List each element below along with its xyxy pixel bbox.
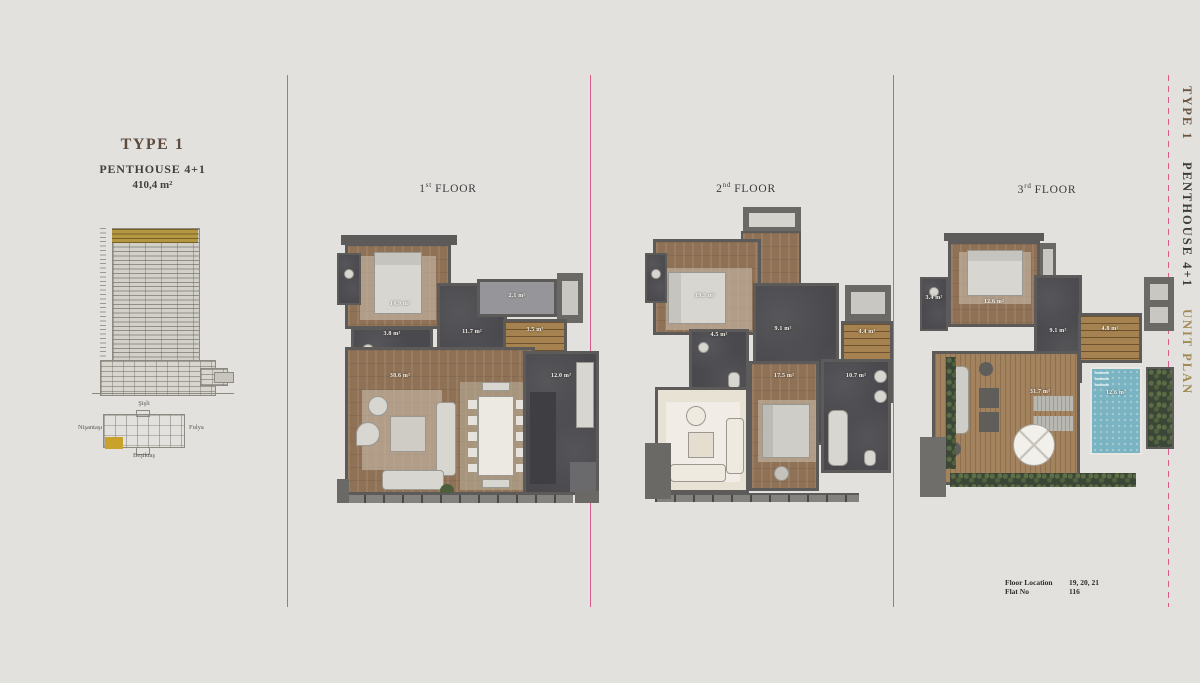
plan1-stairs-area: 3.5 m² (503, 327, 567, 333)
floor-title-1: 1stFLOOR (348, 181, 548, 195)
plan1-balcony-area: 2.1 m² (477, 293, 557, 299)
plan1-bathroom-area: 3.8 m² (351, 331, 433, 337)
unit-title-block: TYPE 1 PENTHOUSE 4+1 410,4 m² (60, 136, 245, 191)
plan3-closet (1144, 277, 1174, 331)
plan1-hall-area: 11.7 m² (437, 329, 507, 335)
plan3-hedge-left (946, 357, 956, 469)
plan3-planter-bottom (950, 473, 1136, 487)
floor-1-word: FLOOR (435, 183, 477, 195)
site-label-south: Beşiktaş (78, 452, 210, 459)
site-key-plan: Şişli Nişantaşı Fulya Beşiktaş (78, 398, 210, 460)
flat-no-value: 116 (1069, 587, 1080, 596)
plan3-stairs (1078, 313, 1142, 363)
wall-segment (645, 443, 671, 499)
plan2-bathroom-area: 4.5 m² (689, 332, 749, 338)
unit-type-title: TYPE 1 (60, 136, 245, 154)
plan2-wc (645, 253, 667, 303)
plan1-bedroom-area: 14.9 m² (355, 301, 445, 307)
plan1-kitchen-area: 12.0 m² (523, 373, 599, 379)
plan2-bedroom2-area: 17.5 m² (749, 373, 819, 379)
floor-location-label: Floor Location (1005, 578, 1069, 587)
plan2-stairs-area: 4.4 m² (841, 329, 893, 335)
unit-total-area: 410,4 m² (60, 179, 245, 191)
unit-info-footer: Floor Location 19, 20, 21 Flat No 116 (1005, 578, 1175, 596)
plan2-bedroom (653, 239, 761, 335)
plan2-bathroom2-area: 10.7 m² (823, 373, 889, 379)
floor-plan-1: 14.9 m² 11.7 m² 2.1 m² 3.8 m² 3.5 m² (337, 207, 600, 503)
site-label-east: Fulya (189, 424, 204, 431)
floor-title-2: 2ndFLOOR (646, 181, 846, 195)
elevation-podium (100, 360, 216, 396)
elevation-ground-line (92, 393, 234, 394)
plan2-closet (845, 285, 891, 321)
floor-2-word: FLOOR (734, 183, 776, 195)
plan2-bedroom-area: 19.3 m² (665, 293, 745, 299)
plan3-bathroom (920, 277, 948, 331)
side-title-type: TYPE 1 (1180, 86, 1194, 141)
site-unit-highlight (105, 437, 123, 449)
plan3-hall-area: 9.1 m² (1034, 328, 1082, 334)
elevation-floor-ticks (100, 228, 106, 360)
floor-title-3: 3rdFLOOR (947, 182, 1147, 196)
wall-segment (944, 233, 1044, 241)
floor-location-value: 19, 20, 21 (1069, 578, 1099, 587)
flat-no-label: Flat No (1005, 587, 1069, 596)
plan2-terrace-strip (655, 493, 859, 502)
floor-3-word: FLOOR (1035, 184, 1077, 196)
wall-segment (920, 437, 946, 497)
site-label-west: Nişantaşı (78, 424, 101, 431)
divider-line-1 (287, 75, 288, 607)
plan3-bathroom-area: 3.4 m² (920, 295, 948, 301)
wall-segment (575, 491, 599, 503)
plan3-pool (1090, 367, 1142, 455)
wall-segment (337, 479, 349, 503)
side-unit-plan-title: TYPE 1 PENTHOUSE 4+1 UNIT PLAN (1179, 86, 1194, 416)
side-title-suffix: UNIT PLAN (1180, 309, 1194, 395)
plan2-hall-area: 9.1 m² (753, 326, 813, 332)
building-elevation (88, 220, 238, 394)
brochure-page: TYPE 1 PENTHOUSE 4+1 410,4 m² Şişli Nişa… (0, 0, 1200, 683)
floor-1-sup: st (426, 181, 432, 189)
plan3-terrace-area: 31.7 m² (1005, 389, 1075, 395)
plan3-pool-area: 12.6 m² (1090, 390, 1142, 396)
elevation-tower (112, 228, 200, 362)
floor-location-row: Floor Location 19, 20, 21 (1005, 578, 1175, 587)
site-label-north: Şişli (78, 400, 210, 407)
plan1-terrace-strip (345, 493, 573, 503)
divider-line-3 (893, 75, 894, 607)
plan2-bedroom2 (749, 361, 819, 491)
elevation-penthouse-highlight (112, 229, 198, 243)
plan2-top-closet (743, 207, 801, 233)
plan1-closet (557, 273, 583, 323)
plan1-living-area: 38.6 m² (365, 373, 435, 379)
floor-3-sup: rd (1024, 182, 1031, 190)
plan3-planter-right (1146, 367, 1174, 449)
plan3-bedroom-area: 12.6 m² (950, 299, 1038, 305)
plan1-living (345, 347, 535, 495)
unit-subtitle: PENTHOUSE 4+1 (60, 162, 245, 177)
plan3-bedroom (948, 241, 1040, 327)
side-title-name: PENTHOUSE 4+1 (1180, 162, 1194, 288)
flat-no-row: Flat No 116 (1005, 587, 1175, 596)
elevation-annex (214, 372, 234, 383)
site-stub-top (136, 410, 150, 417)
floor-2-sup: nd (723, 181, 732, 189)
floor-plan-3: 3.4 m² 12.6 m² 9.1 m² 4.8 m² (920, 225, 1175, 497)
plan1-wc (337, 253, 361, 305)
floor-plan-2: 19.3 m² 4.5 m² 9.1 m² 4.4 m² (645, 205, 893, 502)
plan3-stairs-area: 4.8 m² (1080, 326, 1140, 332)
